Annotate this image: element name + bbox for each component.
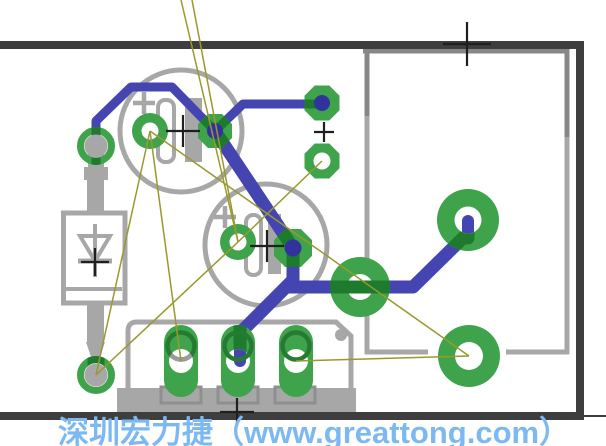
diode-pad-top-lead xyxy=(85,135,108,158)
diode-lead xyxy=(84,167,108,180)
origin-cross-header xyxy=(314,122,334,142)
header-pad-top-hole xyxy=(314,95,330,111)
pcb-drawing xyxy=(0,0,606,446)
airwire xyxy=(150,131,181,361)
terminal-marker-dot xyxy=(335,329,347,341)
pad-layer xyxy=(81,86,501,398)
diode-lead xyxy=(87,303,104,344)
origin-cross-module xyxy=(443,22,491,66)
terminal-pad-2 xyxy=(221,325,255,397)
cap2-pad-pos-hole xyxy=(285,240,302,257)
pcb-layout-canvas: 深圳宏力捷（www.greattong.com） xyxy=(0,0,606,446)
cap1-pad-pos-hole xyxy=(207,123,223,139)
diode-pad-top xyxy=(81,120,112,168)
diode-lead xyxy=(87,179,104,213)
